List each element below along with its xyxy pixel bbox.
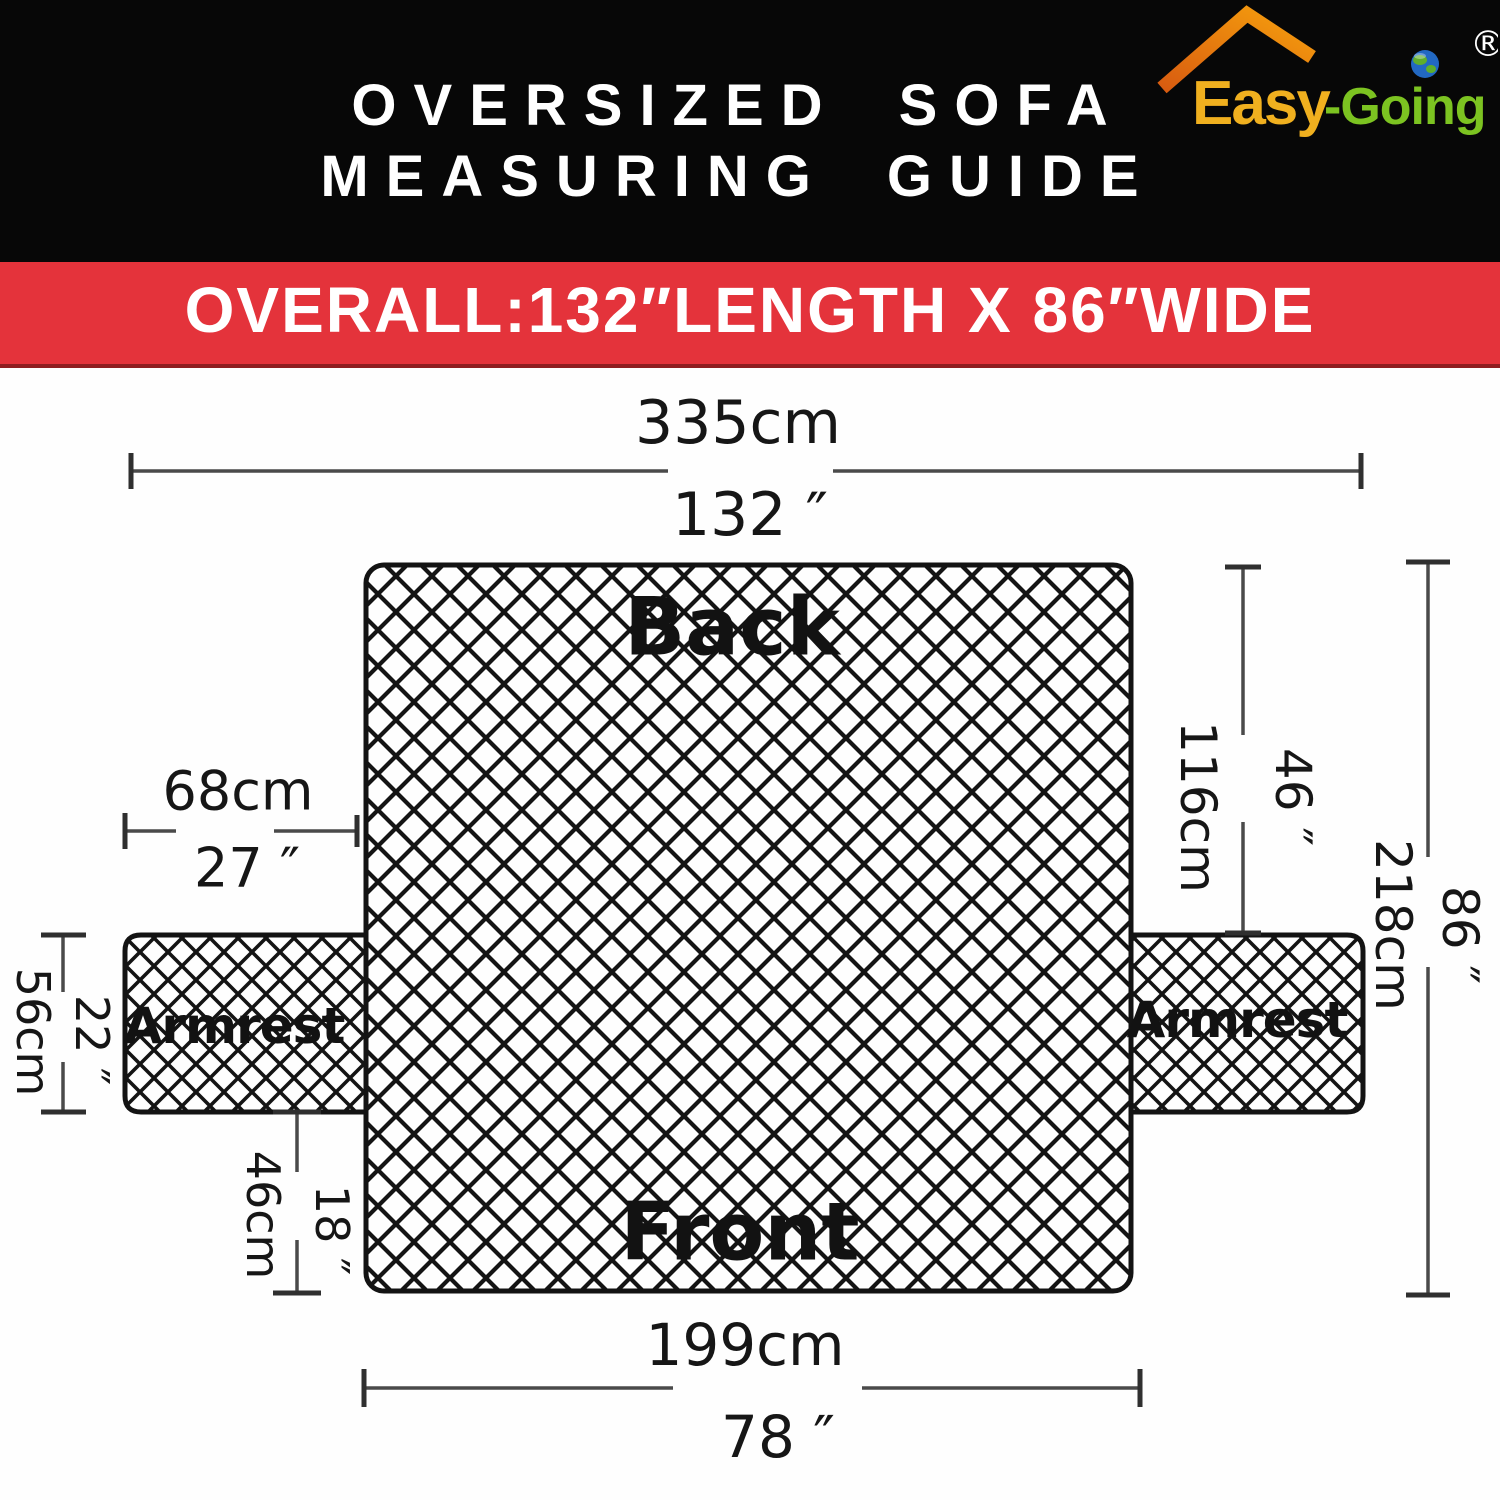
overall-size-text: OVERALL:132″LENGTH X 86″WIDE: [0, 273, 1500, 347]
sofa-body-shape: [366, 565, 1131, 1291]
label-front: Front: [620, 1186, 859, 1279]
dim-overall-length: 335cm 132 ″: [131, 388, 1361, 550]
label-armrest-left: Armrest: [124, 997, 345, 1055]
dim-back-height-cm: 116cm: [1169, 721, 1227, 893]
brand-text-going: -Going: [1324, 78, 1486, 136]
header: OVERSIZED SOFA MEASURING GUIDE Easy -Goi…: [0, 0, 1500, 262]
dim-armrest-width: 56cm 22 ″: [6, 935, 119, 1112]
dim-front-length: 199cm 78 ″: [364, 1311, 1140, 1471]
dim-armrest-length-inch: 27 ″: [194, 837, 300, 900]
dim-overall-length-inch: 132 ″: [672, 480, 828, 550]
dim-overall-width-cm: 218cm: [1364, 839, 1422, 1011]
dim-armrest-length: 68cm 27 ″: [125, 760, 357, 900]
dim-front-length-inch: 78 ″: [721, 1403, 835, 1471]
label-armrest-right: Armrest: [1127, 991, 1348, 1049]
dim-front-length-cm: 199cm: [645, 1311, 844, 1379]
brand-text-easy: Easy: [1192, 69, 1331, 138]
dim-overall-width: 218cm 86 ″: [1364, 562, 1489, 1295]
globe-icon: [1411, 50, 1439, 78]
page: OVERSIZED SOFA MEASURING GUIDE Easy -Goi…: [0, 0, 1500, 1500]
sofa-measuring-diagram: Back Front Armrest Armrest 335cm 132 ″ 6…: [0, 368, 1500, 1500]
registered-mark: ®: [1470, 24, 1498, 65]
overall-size-banner: OVERALL:132″LENGTH X 86″WIDE: [0, 262, 1500, 368]
dim-overall-length-cm: 335cm: [635, 388, 841, 458]
dim-front-height: 46cm 18 ″: [236, 1112, 359, 1293]
label-back: Back: [624, 581, 841, 674]
dim-armrest-width-inch: 22 ″: [65, 995, 119, 1085]
dim-front-height-cm: 46cm: [236, 1151, 290, 1280]
dim-back-height: 116cm 46 ″: [1169, 567, 1322, 933]
dim-armrest-length-cm: 68cm: [162, 760, 313, 823]
dim-back-height-inch: 46 ″: [1264, 748, 1322, 846]
brand-logo: Easy -Going ®: [1148, 4, 1498, 174]
dim-front-height-inch: 18 ″: [305, 1185, 359, 1275]
dim-armrest-width-cm: 56cm: [6, 968, 60, 1097]
dim-overall-width-inch: 86 ″: [1431, 886, 1489, 984]
